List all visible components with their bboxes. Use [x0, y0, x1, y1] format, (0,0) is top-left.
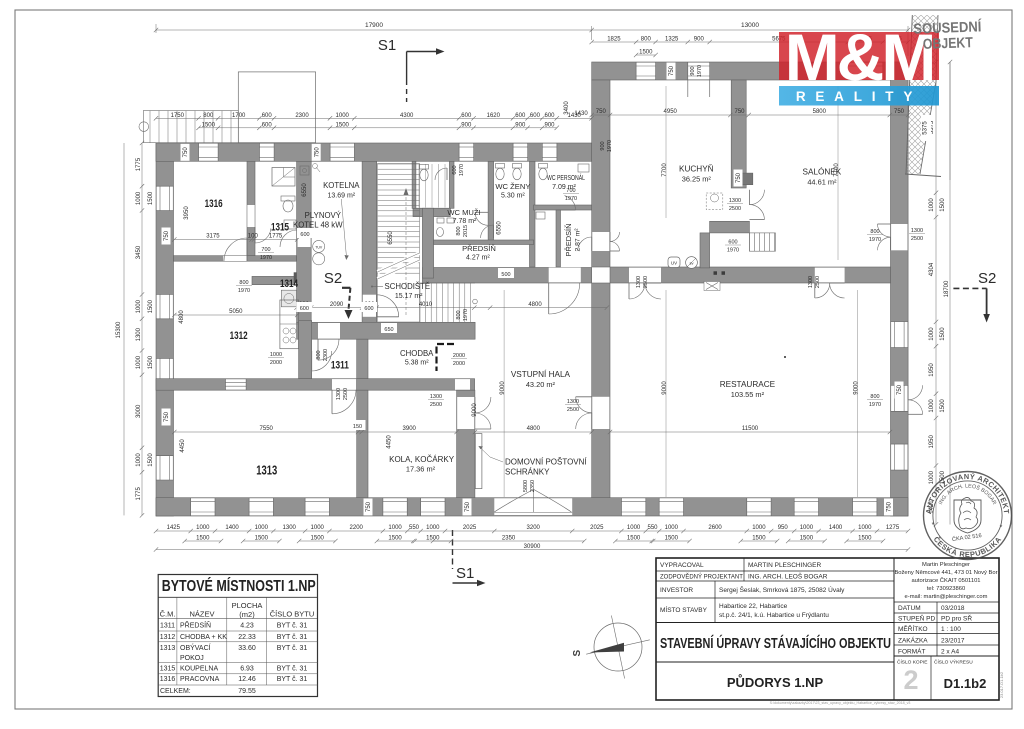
svg-text:17900: 17900 [365, 22, 383, 29]
svg-text:4.27 m²: 4.27 m² [466, 255, 490, 262]
svg-text:2350: 2350 [530, 480, 536, 492]
svg-text:INVESTOR: INVESTOR [660, 587, 693, 594]
svg-text:1400: 1400 [225, 525, 239, 531]
svg-text:600: 600 [515, 113, 526, 119]
svg-text:600: 600 [262, 113, 273, 119]
svg-text:Martin Pleschinger: Martin Pleschinger [922, 562, 970, 568]
svg-text:4300: 4300 [400, 113, 414, 119]
svg-text:1311: 1311 [331, 360, 349, 372]
svg-text:750: 750 [366, 501, 372, 512]
svg-text:1500: 1500 [858, 536, 872, 542]
svg-text:1620: 1620 [487, 113, 501, 119]
svg-text:1000: 1000 [136, 453, 142, 467]
svg-text:800: 800 [456, 310, 462, 319]
svg-text:750: 750 [734, 109, 745, 115]
svg-text:750: 750 [736, 172, 742, 183]
svg-text:750: 750 [669, 65, 675, 76]
svg-text:1970: 1970 [260, 255, 272, 261]
svg-text:PŘEDSÍŇ: PŘEDSÍŇ [564, 224, 573, 257]
svg-text:STAVEBNÍ ÚPRAVY STÁVAJÍCÍHO OB: STAVEBNÍ ÚPRAVY STÁVAJÍCÍHO OBJEKTU [660, 634, 891, 652]
svg-text:1430: 1430 [574, 111, 588, 117]
svg-text:2600: 2600 [708, 525, 722, 531]
svg-text:4.23: 4.23 [240, 622, 254, 629]
svg-text:2500: 2500 [729, 206, 741, 212]
svg-text:PŮDORYS 1.NP: PŮDORYS 1.NP [727, 674, 824, 690]
svg-text:3450: 3450 [136, 245, 142, 259]
svg-text:7700: 7700 [662, 163, 668, 177]
svg-text:1970: 1970 [565, 196, 577, 202]
svg-text:autorizace ČKAIT 0501101: autorizace ČKAIT 0501101 [911, 577, 980, 584]
svg-text:ING. ARCH. LEOŠ BOGAR: ING. ARCH. LEOŠ BOGAR [748, 572, 828, 581]
svg-text:1300: 1300 [911, 228, 923, 234]
svg-text:1500: 1500 [196, 536, 210, 542]
svg-text:CHODBA + KK: CHODBA + KK [180, 634, 227, 641]
svg-text:1775: 1775 [269, 234, 283, 240]
svg-text:CELKEM:: CELKEM: [160, 688, 191, 695]
svg-text:750: 750 [183, 147, 189, 158]
svg-text:BYT č. 31: BYT č. 31 [277, 666, 308, 673]
svg-text:PLYNOVÝ: PLYNOVÝ [305, 211, 342, 220]
svg-text:S2: S2 [978, 270, 996, 287]
svg-text:OBJEKT: OBJEKT [923, 35, 974, 53]
svg-text:5375: 5375 [923, 121, 929, 135]
svg-text:VSTUPNÍ HALA: VSTUPNÍ HALA [511, 369, 571, 379]
svg-text:900: 900 [600, 141, 606, 150]
svg-text:1500: 1500 [940, 198, 946, 212]
svg-text:1000: 1000 [426, 525, 440, 531]
svg-text:79.55: 79.55 [238, 688, 256, 695]
svg-text:SALÓNEK: SALÓNEK [803, 167, 842, 177]
svg-text:1970: 1970 [697, 65, 703, 77]
svg-text:1 : 100: 1 : 100 [941, 626, 961, 633]
svg-text:S:\dokumenty\zakazky\2017\23_s: S:\dokumenty\zakazky\2017\23_stav_upravy… [770, 701, 911, 705]
svg-text:1311: 1311 [160, 622, 175, 629]
svg-text:1000: 1000 [929, 399, 935, 413]
svg-text:4800: 4800 [179, 310, 185, 324]
svg-text:1316: 1316 [160, 676, 176, 683]
svg-text:1000: 1000 [196, 525, 210, 531]
svg-text:600: 600 [262, 122, 273, 128]
svg-text:750: 750 [314, 147, 320, 158]
svg-text:2500: 2500 [430, 402, 442, 408]
svg-text:S: S [572, 650, 583, 657]
svg-text:900: 900 [690, 66, 696, 75]
svg-text:30900: 30900 [524, 544, 541, 550]
svg-text:6.93: 6.93 [240, 666, 254, 673]
svg-text:1500: 1500 [148, 191, 154, 205]
svg-text:1500: 1500 [148, 453, 154, 467]
svg-text:MÍSTO STAVBY: MÍSTO STAVBY [660, 605, 708, 614]
svg-text:BYTOVÉ MÍSTNOSTI 1.NP: BYTOVÉ MÍSTNOSTI 1.NP [162, 576, 316, 595]
svg-text:12.46: 12.46 [238, 676, 256, 683]
svg-text:1500: 1500 [665, 536, 679, 542]
svg-text:1300: 1300 [136, 327, 142, 341]
svg-text:900: 900 [694, 37, 705, 43]
svg-text:TUV: TUV [315, 245, 323, 249]
svg-text:4800: 4800 [528, 302, 542, 308]
svg-text:1950: 1950 [929, 363, 935, 377]
svg-text:KOTEL 48 kW: KOTEL 48 kW [293, 221, 343, 230]
svg-text:103.55 m²: 103.55 m² [731, 390, 765, 399]
svg-text:tel: 730923860: tel: 730923860 [927, 586, 965, 592]
svg-text:600: 600 [300, 232, 309, 238]
svg-text:2.87 m²: 2.87 m² [575, 228, 582, 252]
svg-text:900: 900 [544, 122, 555, 128]
svg-text:2350: 2350 [502, 536, 516, 542]
svg-text:1300: 1300 [729, 198, 741, 204]
svg-text:800: 800 [870, 229, 879, 235]
svg-text:st.p.č. 24/1, k.ú. Habartice u: st.p.č. 24/1, k.ú. Habartice u Frýdlantu [719, 612, 829, 619]
svg-text:1300: 1300 [336, 388, 342, 400]
svg-text:4450: 4450 [180, 439, 186, 453]
svg-text:FORMÁT: FORMÁT [898, 647, 925, 656]
svg-text:600: 600 [461, 113, 472, 119]
svg-text:KOLA, KOČÁRKY: KOLA, KOČÁRKY [389, 455, 455, 464]
svg-text:1000: 1000 [255, 525, 269, 531]
svg-text:KUCHYŇ: KUCHYŇ [679, 164, 714, 174]
svg-text:1300: 1300 [567, 399, 579, 405]
svg-text:800: 800 [239, 280, 248, 286]
svg-text:2015: 2015 [463, 225, 469, 237]
svg-text:11500: 11500 [742, 426, 759, 432]
svg-text:600: 600 [300, 306, 309, 312]
svg-text:1313: 1313 [256, 464, 277, 478]
svg-text:1300: 1300 [283, 525, 297, 531]
svg-text:7.78 m²: 7.78 m² [453, 218, 477, 225]
svg-text:1500: 1500 [752, 536, 766, 542]
svg-text:1000: 1000 [136, 191, 142, 205]
svg-text:950: 950 [778, 525, 789, 531]
svg-text:500: 500 [501, 272, 510, 278]
svg-text:43.20 m²: 43.20 m² [526, 380, 556, 389]
svg-text:1970: 1970 [727, 248, 739, 254]
svg-text:2090: 2090 [330, 302, 344, 308]
svg-text:SCHRÁNKY: SCHRÁNKY [505, 467, 550, 476]
svg-text:5.38 m²: 5.38 m² [405, 360, 429, 367]
svg-text:1500: 1500 [336, 122, 350, 128]
svg-text:3175: 3175 [206, 234, 220, 240]
svg-text:e-mail: martin@pleschinger.com: e-mail: martin@pleschinger.com [905, 594, 988, 600]
svg-text:800: 800 [870, 394, 879, 400]
svg-text:MARTIN PLESCHINGER: MARTIN PLESCHINGER [748, 562, 822, 569]
svg-text:3200: 3200 [527, 525, 541, 531]
svg-text:1750: 1750 [171, 113, 185, 119]
svg-text:1300: 1300 [808, 276, 814, 288]
svg-text:1500: 1500 [311, 536, 325, 542]
svg-text:1316: 1316 [205, 198, 223, 210]
svg-text:15300: 15300 [116, 321, 122, 338]
svg-text:1000: 1000 [929, 327, 935, 341]
svg-text:800: 800 [641, 37, 652, 43]
svg-text:36.25 m²: 36.25 m² [682, 174, 712, 183]
svg-text:1000: 1000 [627, 525, 641, 531]
svg-text:1500: 1500 [940, 399, 946, 413]
svg-text:1400: 1400 [829, 525, 843, 531]
svg-text:1500: 1500 [639, 50, 653, 56]
svg-text:DATUM: DATUM [898, 605, 921, 612]
svg-text:550: 550 [647, 525, 658, 531]
svg-text:WC PERSONÁL: WC PERSONÁL [547, 173, 585, 182]
svg-text:2500: 2500 [567, 407, 579, 413]
svg-text:BYT č. 31: BYT č. 31 [277, 676, 308, 683]
svg-text:13.69 m²: 13.69 m² [327, 192, 355, 199]
svg-text:4010: 4010 [419, 302, 433, 308]
svg-text:100: 100 [248, 234, 259, 240]
svg-text:5050: 5050 [229, 309, 243, 315]
svg-text:Č.M.: Č.M. [160, 610, 176, 619]
svg-text:1825: 1825 [607, 37, 621, 43]
svg-text:750: 750 [164, 230, 170, 241]
svg-text:1000: 1000 [800, 525, 814, 531]
svg-text:1500: 1500 [148, 355, 154, 369]
svg-text:750: 750 [164, 411, 170, 422]
svg-text:150: 150 [353, 424, 362, 430]
svg-text:NÁZEV: NÁZEV [189, 610, 214, 619]
svg-text:MĚŘÍTKO: MĚŘÍTKO [898, 624, 928, 633]
svg-text:9000: 9000 [662, 381, 668, 395]
svg-text:UV: UV [671, 261, 677, 266]
svg-text:S2: S2 [324, 270, 342, 287]
svg-text:KOUPELNA: KOUPELNA [180, 666, 218, 673]
svg-text:2500: 2500 [815, 276, 821, 288]
svg-text:7550: 7550 [260, 426, 274, 432]
svg-text:4304: 4304 [929, 262, 935, 276]
svg-text:2200: 2200 [350, 525, 364, 531]
svg-text:600: 600 [452, 165, 458, 174]
svg-text:2000: 2000 [270, 360, 282, 366]
svg-text:1500: 1500 [148, 299, 154, 313]
svg-text:6550: 6550 [388, 231, 394, 245]
svg-text:S1: S1 [378, 37, 396, 54]
svg-text:Habartice 22, Habartice: Habartice 22, Habartice [719, 603, 788, 610]
svg-text:PRACOVNA: PRACOVNA [180, 676, 220, 683]
svg-text:KOTELNA: KOTELNA [323, 181, 360, 190]
svg-text:PD pro SŘ: PD pro SŘ [941, 614, 972, 623]
svg-text:1950: 1950 [929, 434, 935, 448]
svg-text:1970: 1970 [463, 309, 469, 321]
svg-text:1000: 1000 [929, 198, 935, 212]
svg-text:33.60: 33.60 [238, 645, 256, 652]
svg-text:1970: 1970 [459, 164, 465, 176]
svg-text:1700: 1700 [232, 113, 246, 119]
svg-text:18700: 18700 [944, 280, 950, 297]
svg-text:2500: 2500 [343, 388, 349, 400]
svg-text:Sergej Šeslak, Smrková 1875, 2: Sergej Šeslak, Smrková 1875, 25082 Úvaly [719, 585, 845, 594]
svg-text:1312: 1312 [160, 634, 176, 641]
svg-text:6550: 6550 [497, 221, 503, 235]
svg-text:750: 750 [887, 501, 893, 512]
svg-text:1312: 1312 [230, 330, 248, 342]
svg-text:3400: 3400 [564, 101, 570, 115]
svg-text:900: 900 [515, 122, 526, 128]
svg-text:750: 750 [596, 109, 607, 115]
svg-text:1000: 1000 [858, 525, 872, 531]
svg-text:13000: 13000 [741, 22, 759, 29]
svg-text:5800: 5800 [813, 109, 827, 115]
svg-text:1970: 1970 [238, 288, 250, 294]
svg-text:600: 600 [544, 113, 555, 119]
svg-text:1775: 1775 [136, 157, 142, 171]
svg-text:1970: 1970 [869, 237, 881, 243]
svg-text:550: 550 [409, 525, 420, 531]
svg-text:REALITY: REALITY [796, 89, 922, 104]
svg-text:WC MUŽI: WC MUŽI [447, 208, 480, 217]
svg-text:1314: 1314 [280, 278, 299, 290]
svg-text:3000: 3000 [136, 404, 142, 418]
svg-text:750: 750 [465, 501, 471, 512]
svg-text:S1: S1 [456, 565, 474, 582]
svg-text:1500: 1500 [940, 327, 946, 341]
svg-text:1500: 1500 [202, 122, 216, 128]
svg-text:ČÍSLO BYTU: ČÍSLO BYTU [270, 610, 315, 619]
svg-text:750: 750 [897, 384, 903, 395]
svg-text:SCHODIŠTĚ: SCHODIŠTĚ [385, 282, 431, 291]
svg-text:1300: 1300 [430, 394, 442, 400]
svg-text:1000: 1000 [136, 355, 142, 369]
svg-text:03/2018: 03/2018 [941, 605, 965, 612]
svg-text:BYT č. 31: BYT č. 31 [277, 634, 308, 641]
svg-text:17.36 m²: 17.36 m² [406, 464, 436, 473]
svg-text:1500: 1500 [627, 536, 641, 542]
svg-text:2300: 2300 [323, 349, 329, 361]
svg-text:800: 800 [316, 350, 322, 359]
svg-text:1000: 1000 [388, 525, 402, 531]
svg-text:5.30 m²: 5.30 m² [501, 193, 525, 200]
svg-text:800: 800 [203, 113, 214, 119]
svg-text:1500: 1500 [255, 536, 269, 542]
svg-text:1500: 1500 [388, 536, 402, 542]
svg-text:4800: 4800 [527, 426, 541, 432]
svg-text:ZODPOVĚDNÝ PROJEKTANT: ZODPOVĚDNÝ PROJEKTANT [660, 573, 743, 581]
svg-text:WC ŽENY: WC ŽENY [495, 182, 530, 191]
svg-text:*: * [932, 522, 935, 529]
svg-text:OBÝVACÍ: OBÝVACÍ [180, 643, 211, 652]
svg-text:600: 600 [364, 306, 373, 312]
svg-text:2300: 2300 [295, 113, 309, 119]
svg-text:1775: 1775 [136, 486, 142, 500]
svg-text:M&M: M&M [785, 20, 934, 94]
svg-text:1000: 1000 [270, 352, 282, 358]
svg-text:6550: 6550 [302, 183, 308, 197]
svg-text:*: * [1000, 525, 1003, 532]
svg-text:3900: 3900 [403, 426, 417, 432]
svg-text:PŘEDSÍŇ: PŘEDSÍŇ [462, 244, 496, 253]
svg-text:1325: 1325 [665, 37, 679, 43]
svg-text:2: 2 [903, 665, 918, 695]
svg-text:1000: 1000 [665, 525, 679, 531]
svg-text:900: 900 [461, 122, 472, 128]
svg-text:Boženy Němcové 441, 473 01 Nov: Boženy Němcové 441, 473 01 Nový Bor [894, 570, 997, 576]
svg-text:sv: sv [690, 261, 694, 266]
svg-text:4950: 4950 [664, 109, 678, 115]
svg-text:PLOCHA: PLOCHA [232, 601, 263, 610]
svg-text:PŘEDSÍŇ: PŘEDSÍŇ [180, 620, 211, 629]
svg-text:23.017.D1.1b2: 23.017.D1.1b2 [999, 671, 1004, 698]
svg-text:2 x A4: 2 x A4 [941, 649, 959, 656]
svg-text:CHODBA: CHODBA [400, 349, 434, 358]
svg-text:800: 800 [456, 226, 462, 235]
svg-text:RESTAURACE: RESTAURACE [720, 380, 776, 389]
svg-text:600: 600 [728, 240, 737, 246]
svg-text:9000: 9000 [500, 381, 506, 395]
svg-text:1500: 1500 [800, 536, 814, 542]
svg-text:2500: 2500 [911, 236, 923, 242]
svg-text:44.61 m²: 44.61 m² [807, 178, 837, 187]
svg-text:2000: 2000 [453, 361, 465, 367]
svg-text:1275: 1275 [886, 525, 900, 531]
svg-text:9000: 9000 [854, 381, 860, 395]
svg-text:1315: 1315 [271, 222, 289, 234]
svg-text:1425: 1425 [167, 525, 181, 531]
svg-text:STUPEŇ PD: STUPEŇ PD [898, 614, 936, 623]
svg-text:1000: 1000 [752, 525, 766, 531]
svg-text:4450: 4450 [387, 435, 393, 449]
svg-text:23/2017: 23/2017 [941, 638, 965, 645]
svg-text:5800: 5800 [523, 480, 529, 492]
svg-text:1000: 1000 [136, 299, 142, 313]
svg-text:1970: 1970 [869, 402, 881, 408]
svg-text:BYT č. 31: BYT č. 31 [277, 622, 308, 629]
svg-text:1000: 1000 [336, 113, 350, 119]
svg-text:1000: 1000 [929, 470, 935, 484]
svg-text:3950: 3950 [184, 206, 190, 220]
svg-text:ZAKÁZKA: ZAKÁZKA [898, 636, 928, 645]
svg-text:650: 650 [384, 327, 393, 333]
svg-text:7.09 m²: 7.09 m² [552, 184, 576, 191]
svg-text:750: 750 [894, 109, 905, 115]
svg-text:15.17 m²: 15.17 m² [395, 293, 423, 300]
svg-text:2025: 2025 [590, 525, 604, 531]
svg-text:1315: 1315 [160, 666, 176, 673]
svg-text:D1.1b2: D1.1b2 [944, 676, 987, 691]
svg-text:9000: 9000 [472, 403, 478, 417]
svg-text:700: 700 [261, 247, 270, 253]
svg-text:1000: 1000 [311, 525, 325, 531]
svg-text:ČÍSLO VÝKRESU: ČÍSLO VÝKRESU [934, 659, 973, 666]
svg-text:DOMOVNÍ POŠTOVNÍ: DOMOVNÍ POŠTOVNÍ [505, 458, 587, 467]
svg-text:2025: 2025 [463, 525, 477, 531]
svg-text:600: 600 [530, 113, 541, 119]
svg-text:1970: 1970 [607, 140, 613, 152]
svg-text:1300: 1300 [636, 276, 642, 288]
svg-text:1313: 1313 [160, 645, 176, 652]
svg-text:2500: 2500 [643, 276, 649, 288]
svg-text:BYT č. 31: BYT č. 31 [277, 645, 308, 652]
svg-text:2000: 2000 [453, 353, 465, 359]
svg-text:VYPRACOVAL: VYPRACOVAL [660, 562, 704, 569]
svg-text:22.33: 22.33 [238, 634, 256, 641]
svg-text:(m2): (m2) [239, 610, 255, 619]
svg-text:POKOJ: POKOJ [180, 655, 204, 662]
